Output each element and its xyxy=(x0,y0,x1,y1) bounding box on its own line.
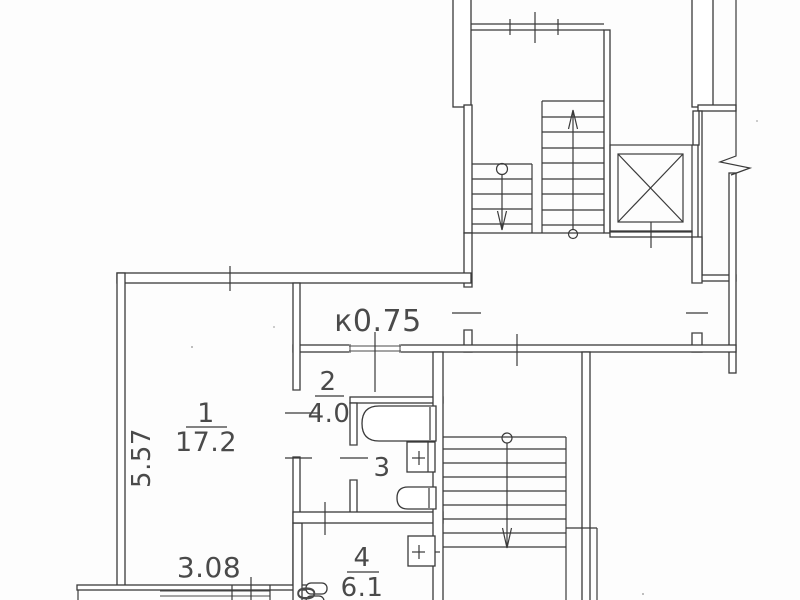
room2-area-label: 4.0 xyxy=(308,399,351,429)
room1-number-label: 1 xyxy=(197,398,215,429)
scan-specks xyxy=(191,120,758,595)
room1-height-dimension: 5.57 xyxy=(127,428,157,488)
floor-plan-svg: 1 17.2 5.57 3.08 2 4.0 3 4 6.1 к0.75 60 xyxy=(0,0,800,600)
entrance-doors xyxy=(452,283,708,366)
top-window xyxy=(471,12,604,43)
bathtub xyxy=(362,406,436,441)
stairs-up-flight xyxy=(542,101,604,239)
room4-area-label: 6.1 xyxy=(341,573,384,600)
upper-stairwell-walls xyxy=(453,0,750,373)
break-line xyxy=(720,0,750,175)
room2-number-label: 2 xyxy=(319,367,336,397)
sink xyxy=(407,442,435,472)
room1-area-label: 17.2 xyxy=(175,427,237,458)
edge-dimension-label: 60 xyxy=(293,585,321,600)
room1-width-dimension: 3.08 xyxy=(177,551,241,584)
toilet xyxy=(397,487,436,509)
stair-start-circle xyxy=(497,164,508,175)
door-width-note: к0.75 xyxy=(334,304,421,339)
elevator-shaft xyxy=(610,145,692,248)
room3-number-label: 3 xyxy=(373,453,390,483)
kitchen-sink xyxy=(408,536,435,566)
floor-plan-scan: 1 17.2 5.57 3.08 2 4.0 3 4 6.1 к0.75 60 xyxy=(0,0,800,600)
stairs-down-flight xyxy=(472,164,604,234)
room4-number-label: 4 xyxy=(353,543,370,573)
stair-start-circle xyxy=(569,230,578,239)
stair-start-circle xyxy=(502,433,512,443)
lower-stairwell xyxy=(443,433,597,600)
